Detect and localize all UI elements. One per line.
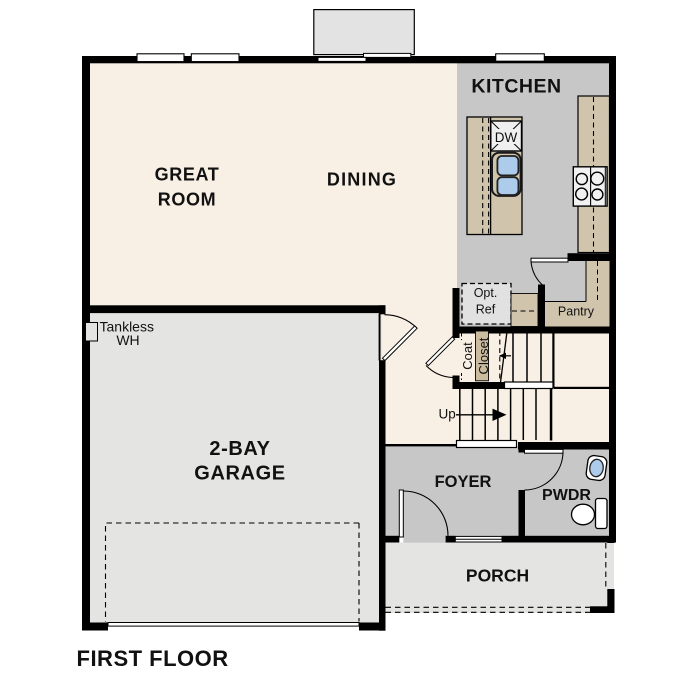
- svg-text:FIRST FLOOR: FIRST FLOOR: [77, 646, 229, 671]
- svg-text:Ref: Ref: [476, 303, 496, 317]
- svg-text:FOYER: FOYER: [435, 473, 492, 491]
- svg-text:Pantry: Pantry: [558, 305, 595, 319]
- svg-text:Up: Up: [439, 407, 456, 422]
- svg-text:PORCH: PORCH: [466, 566, 529, 586]
- svg-text:GARAGE: GARAGE: [194, 463, 285, 485]
- svg-text:DINING: DINING: [327, 170, 397, 190]
- svg-text:DW: DW: [495, 130, 518, 145]
- svg-text:GREAT: GREAT: [155, 165, 220, 185]
- svg-text:Opt.: Opt.: [474, 286, 498, 300]
- svg-text:Closet: Closet: [476, 337, 491, 374]
- svg-text:WH: WH: [116, 332, 139, 348]
- svg-text:2-BAY: 2-BAY: [209, 438, 270, 460]
- svg-text:PWDR: PWDR: [542, 487, 591, 504]
- svg-text:Coat: Coat: [460, 342, 475, 370]
- svg-text:KITCHEN: KITCHEN: [471, 76, 561, 98]
- svg-text:ROOM: ROOM: [158, 190, 216, 210]
